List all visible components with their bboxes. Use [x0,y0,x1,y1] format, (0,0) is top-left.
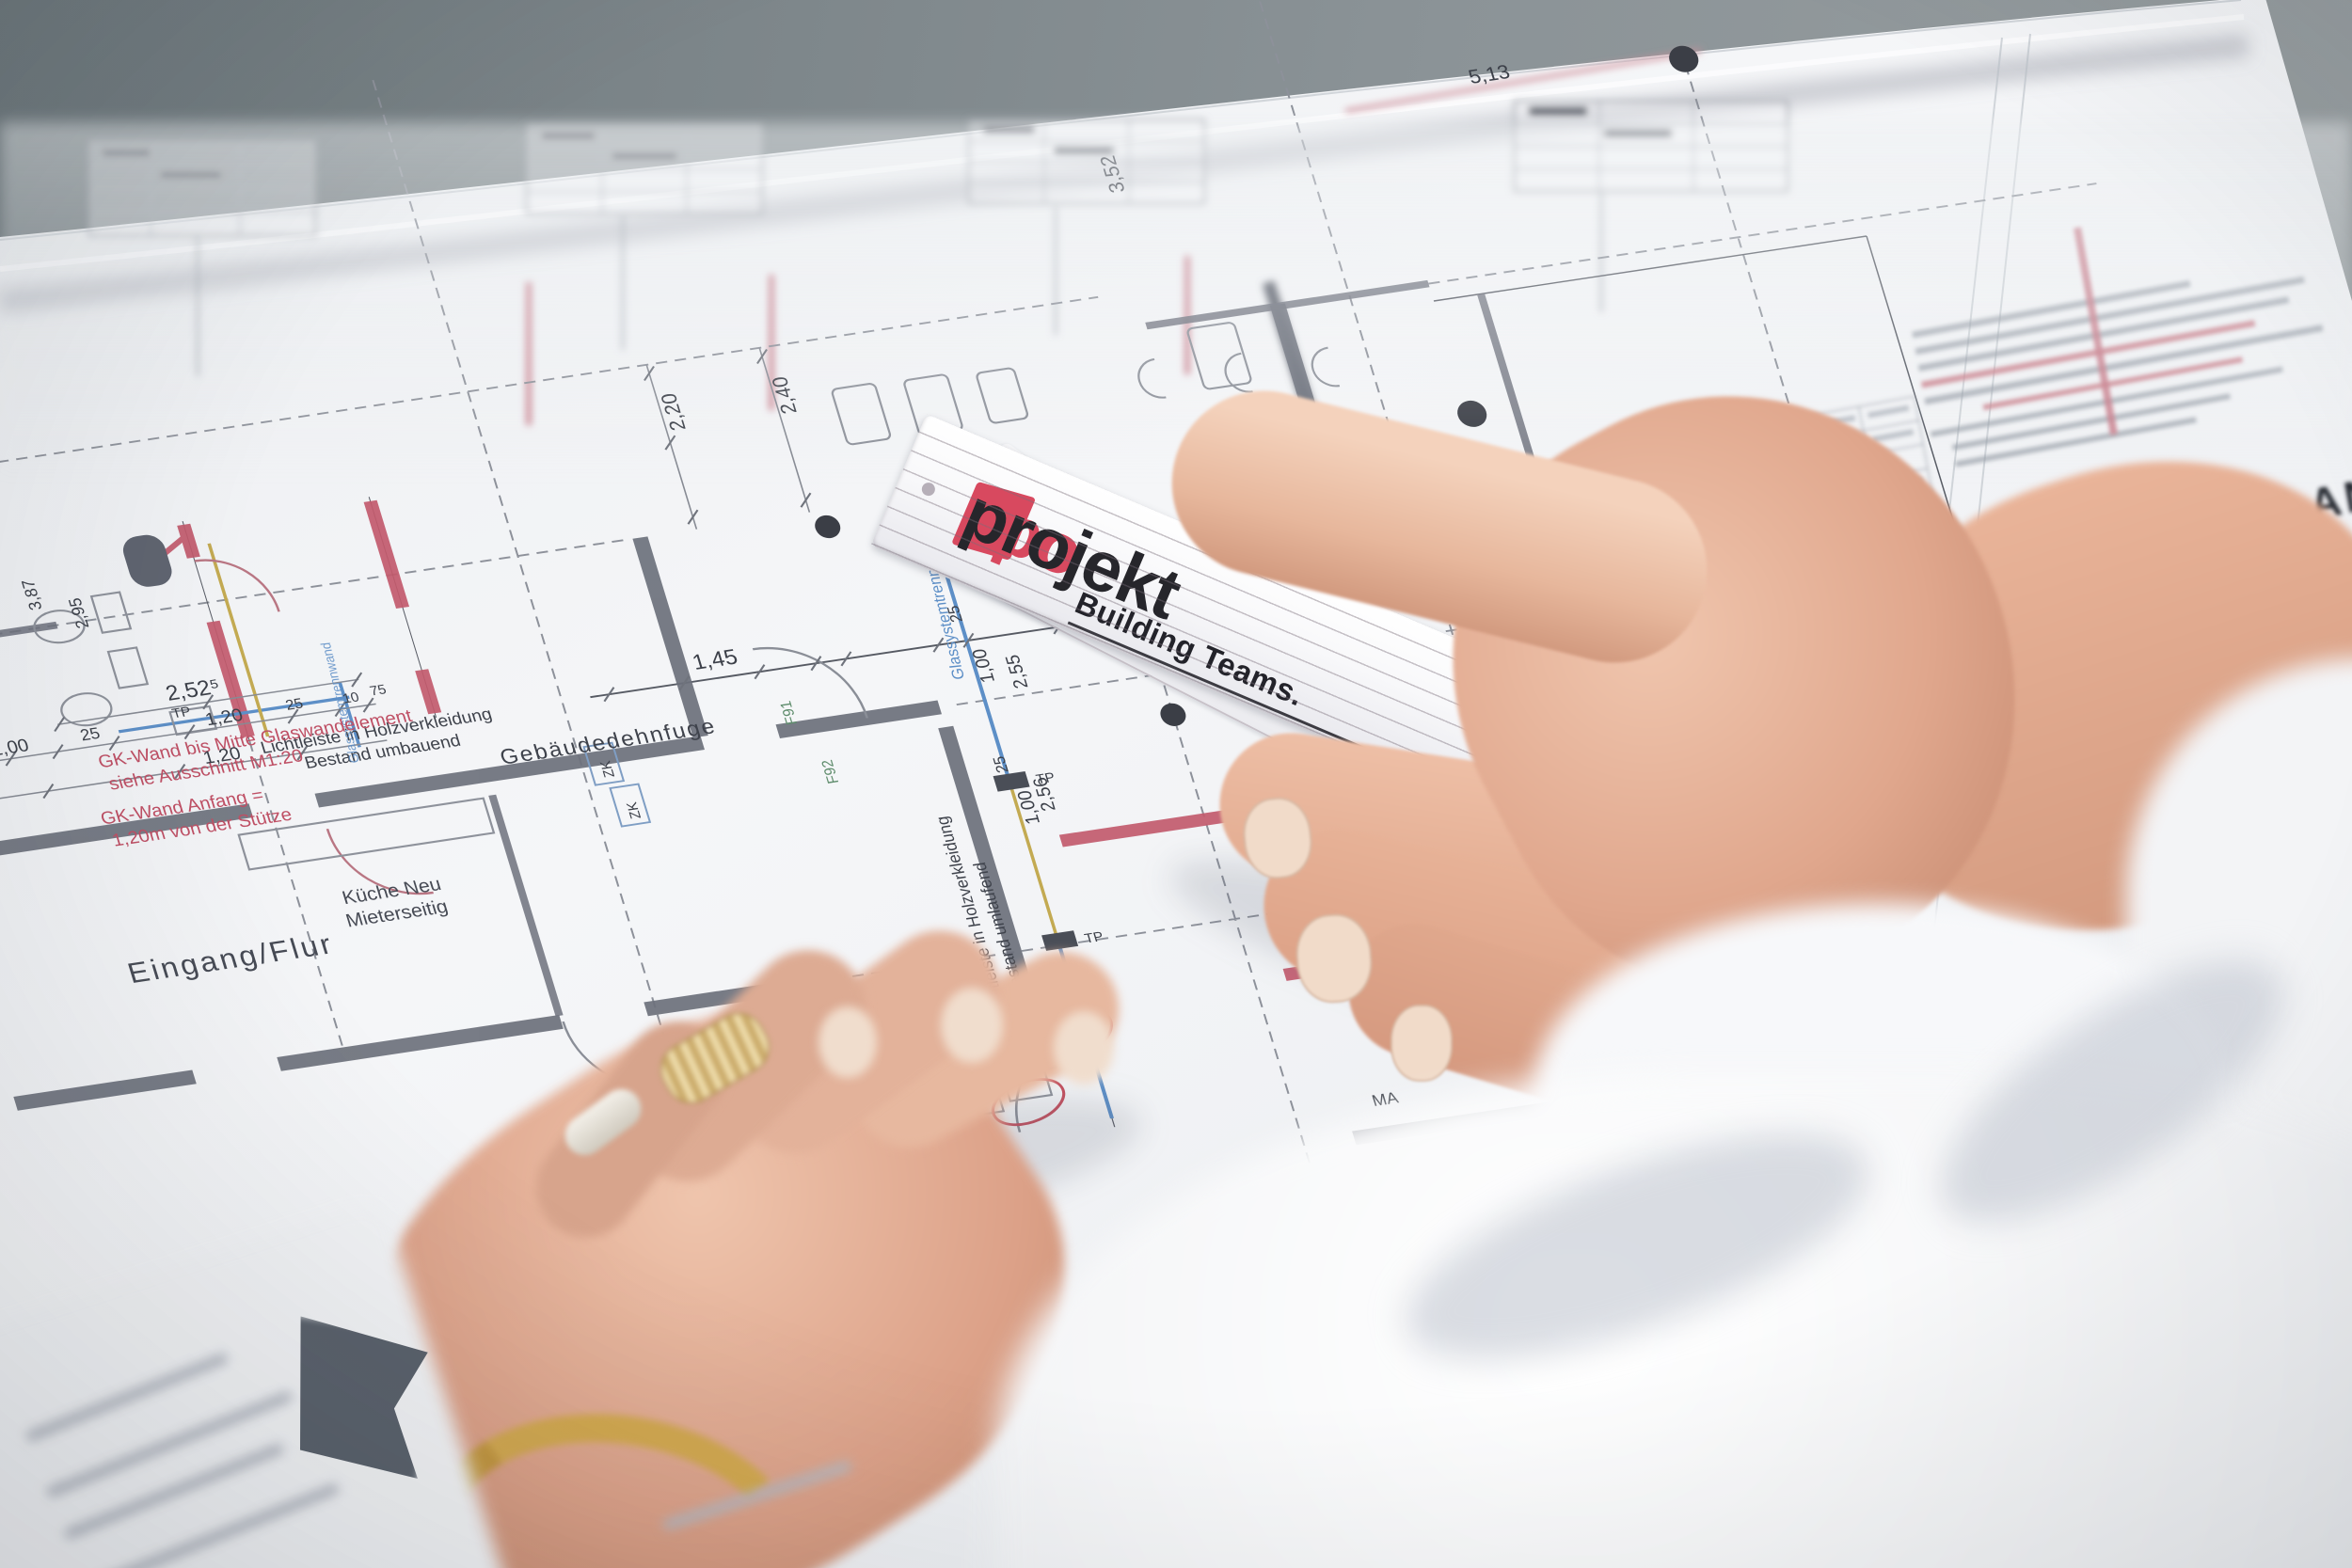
photo-scene: Eingang/Flur Küche Neu Mieterseitig Lich… [0,0,2352,1568]
left-fingernail [818,1006,877,1078]
depth-of-field-haze [0,122,2352,480]
right-fingernail [1391,1005,1453,1082]
marker-ma: MA [1370,1088,1401,1110]
ruler-rivet [920,481,937,498]
brand-logo: apoprojekt [946,462,1041,580]
left-fingernail [941,988,1003,1063]
left-fingernail [1054,1011,1114,1085]
